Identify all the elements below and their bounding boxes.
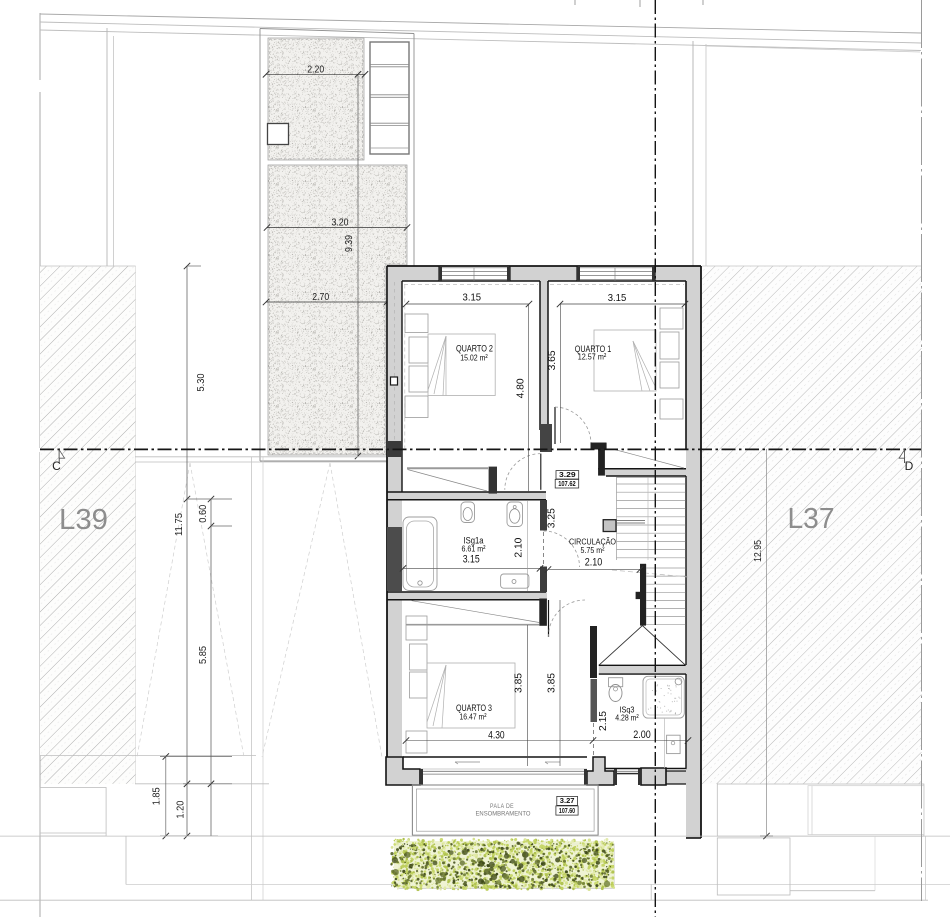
svg-text:11.75: 11.75 <box>174 513 185 536</box>
svg-text:4.80: 4.80 <box>515 378 527 398</box>
svg-text:3.85: 3.85 <box>546 673 558 693</box>
svg-text:3.29: 3.29 <box>559 470 576 479</box>
svg-text:3.15: 3.15 <box>463 291 482 303</box>
svg-text:4.30: 4.30 <box>488 729 505 741</box>
svg-text:4.28 m²: 4.28 m² <box>615 712 639 722</box>
svg-text:D: D <box>905 459 914 473</box>
svg-text:2.70: 2.70 <box>312 292 329 303</box>
svg-text:2.20: 2.20 <box>307 65 324 76</box>
svg-text:5.30: 5.30 <box>196 373 207 391</box>
svg-text:3.15: 3.15 <box>463 554 480 566</box>
svg-text:12.95: 12.95 <box>753 540 764 562</box>
svg-text:5.75 m²: 5.75 m² <box>581 545 605 555</box>
svg-text:1.20: 1.20 <box>175 800 186 818</box>
svg-text:2.10: 2.10 <box>585 557 603 569</box>
svg-text:9.39: 9.39 <box>344 235 355 252</box>
svg-text:ENSOMBRAMENTO: ENSOMBRAMENTO <box>476 810 531 817</box>
svg-text:C: C <box>52 459 61 473</box>
svg-text:12.57 m²: 12.57 m² <box>578 352 607 362</box>
svg-text:1.85: 1.85 <box>152 787 163 805</box>
svg-text:3.15: 3.15 <box>608 292 627 304</box>
svg-text:6.61 m²: 6.61 m² <box>462 544 486 554</box>
svg-text:L37: L37 <box>788 503 835 535</box>
svg-text:107.62: 107.62 <box>558 479 576 488</box>
svg-text:3.65: 3.65 <box>546 350 558 370</box>
svg-text:2.10: 2.10 <box>513 537 525 557</box>
svg-text:0.60: 0.60 <box>198 504 209 522</box>
svg-text:3.85: 3.85 <box>513 673 525 693</box>
svg-text:2.00: 2.00 <box>633 729 651 741</box>
svg-text:3.25: 3.25 <box>545 508 557 528</box>
svg-text:PALA DE: PALA DE <box>490 803 514 810</box>
svg-text:16.47 m²: 16.47 m² <box>460 712 487 722</box>
svg-text:15.02 m²: 15.02 m² <box>460 352 488 362</box>
svg-text:L39: L39 <box>59 504 108 536</box>
svg-text:3.20: 3.20 <box>332 218 349 229</box>
svg-text:107.60: 107.60 <box>559 806 575 815</box>
svg-text:2.15: 2.15 <box>597 711 609 731</box>
svg-text:5.85: 5.85 <box>198 646 209 664</box>
svg-text:3.27: 3.27 <box>560 796 575 805</box>
